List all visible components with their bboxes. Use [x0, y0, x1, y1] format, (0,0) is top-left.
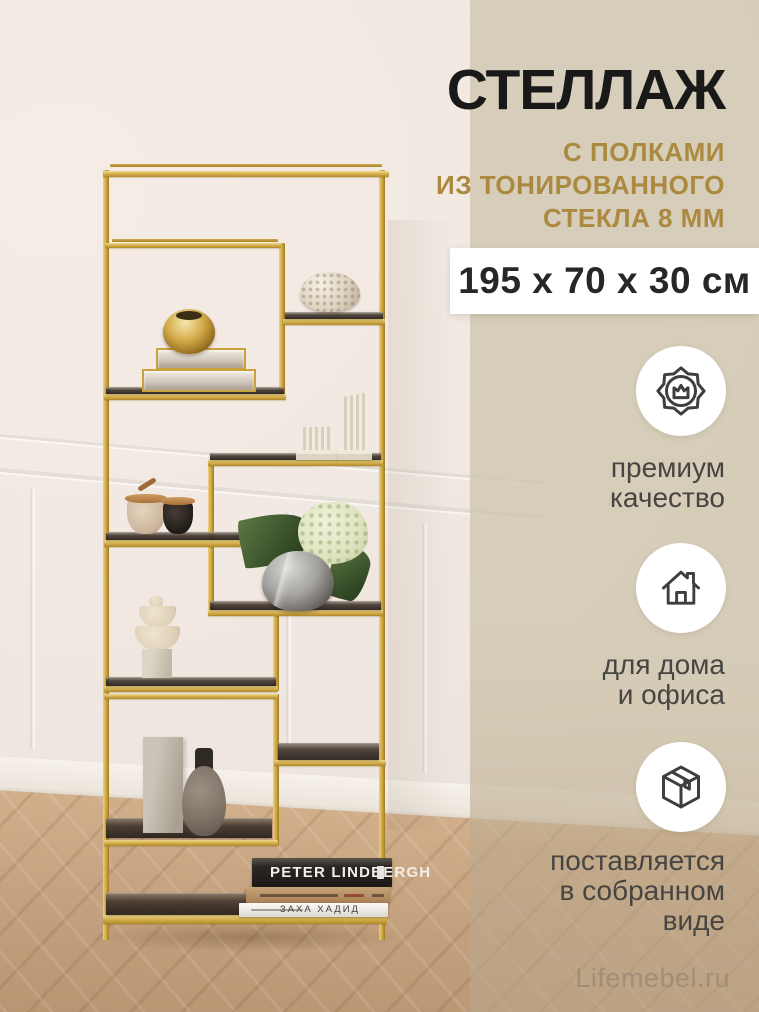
- site-watermark: Lifemebel.ru: [575, 963, 730, 994]
- product-card: PETER LINDBERGH ЗАХА ХАДИД СТЕЛЛАЖ С ПОЛ…: [0, 0, 759, 1012]
- feature-line: виде: [550, 906, 725, 936]
- coral-decor-pot: [300, 272, 360, 312]
- feature-line: для дома: [603, 650, 725, 680]
- gold-frame-bar: [105, 243, 281, 248]
- sculpture-bowl-top: [139, 606, 176, 628]
- gold-frame-bar: [379, 170, 385, 940]
- gold-frame-bar: [273, 694, 279, 846]
- feature-label: для дома и офиса: [603, 650, 725, 710]
- gold-frame-bar: [103, 171, 389, 177]
- taupe-vase: [182, 766, 226, 836]
- tinted-glass-shelf: [285, 312, 383, 319]
- home-icon: [654, 561, 708, 615]
- product-subtitle: С ПОЛКАМИ ИЗ ТОНИРОВАННОГО СТЕКЛА 8 ММ: [436, 136, 725, 235]
- column-base: [337, 450, 372, 460]
- beige-jar: [127, 500, 165, 534]
- gold-frame-bar: [104, 694, 278, 699]
- gold-vase: [163, 309, 215, 354]
- book-publisher-mark: [377, 866, 384, 879]
- book-spine: PETER LINDBERGH: [252, 858, 392, 887]
- gold-frame-bar: [104, 686, 278, 692]
- subtitle-line: С ПОЛКАМИ: [436, 136, 725, 169]
- premium-seal-crown-icon: [653, 363, 709, 419]
- dimensions-text: 195 х 70 х 30 см: [450, 248, 759, 314]
- sculpture-bowl-bottom: [135, 626, 180, 651]
- wooden-spoon: [137, 477, 157, 492]
- fluted-column-tall: [341, 392, 368, 452]
- feature-icon-circle: [636, 742, 726, 832]
- feature-line: качество: [610, 483, 725, 513]
- feature-icon-circle: [636, 543, 726, 633]
- illegible-spine-text: [251, 909, 303, 911]
- gold-frame-bar: [208, 460, 383, 466]
- illegible-spine-text: [260, 894, 338, 897]
- gold-frame-bar: [274, 760, 386, 766]
- feature-line: поставляется: [550, 846, 725, 876]
- feature-line: премиум: [610, 453, 725, 483]
- mirrored-box-lower: [142, 369, 256, 392]
- column-base: [296, 450, 337, 460]
- tinted-glass-shelf: [106, 677, 276, 686]
- subtitle-line: СТЕКЛА 8 ММ: [436, 202, 725, 235]
- feature-label: премиум качество: [610, 453, 725, 513]
- feature-line: и офиса: [603, 680, 725, 710]
- book-spine: [246, 887, 390, 903]
- subtitle-line: ИЗ ТОНИРОВАННОГО: [436, 169, 725, 202]
- gold-frame-bar: [104, 394, 286, 400]
- book-spine: ЗАХА ХАДИД: [239, 903, 388, 917]
- package-box-icon: [653, 759, 709, 815]
- feature-line: в собранном: [550, 876, 725, 906]
- gold-frame-bar: [283, 319, 385, 325]
- smoked-glass-vase: [262, 551, 334, 611]
- feature-icon-circle: [636, 346, 726, 436]
- tinted-glass-shelf: [278, 743, 379, 760]
- book-title: PETER LINDBERGH: [270, 864, 431, 881]
- gold-vase-opening: [176, 311, 202, 320]
- sculpture-base-cube: [142, 649, 172, 678]
- wooden-lid: [161, 497, 195, 505]
- illegible-spine-text: [344, 894, 364, 897]
- gold-frame-bar: [104, 840, 278, 846]
- concrete-block-decor: [143, 737, 183, 833]
- illegible-spine-text: [372, 894, 384, 897]
- gold-frame-bar: [110, 164, 382, 167]
- product-title: СТЕЛЛАЖ: [447, 62, 725, 119]
- gold-frame-bar: [112, 239, 278, 242]
- black-jar: [163, 503, 193, 534]
- feature-label: поставляется в собранном виде: [550, 846, 725, 936]
- dimensions-badge: 195 х 70 х 30 см: [450, 248, 759, 314]
